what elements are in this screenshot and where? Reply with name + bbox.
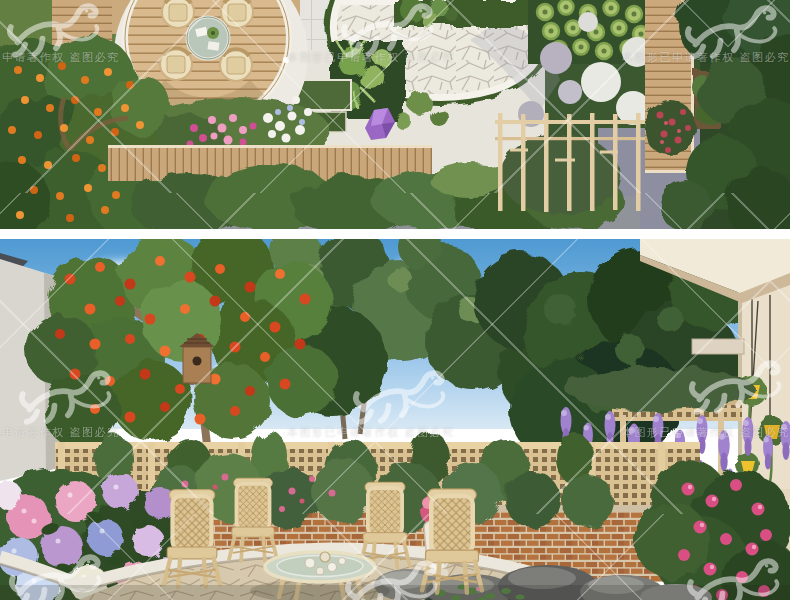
fruit-tree xyxy=(26,239,338,474)
bottom-shadow xyxy=(0,585,790,600)
courtyard-scene xyxy=(0,239,790,600)
garden-aerial-plan-image: 本图形已申请著作权 盗图必究 本图形已申请著作权 盗图必究 本图形已申请著作权 … xyxy=(0,0,790,229)
red-flower-bed xyxy=(644,100,696,156)
image-gap xyxy=(0,229,790,239)
garden-courtyard-image: 本图形已申请著作权 盗图必究 本图形已申请著作权 盗图必究 本图形已申请著作权 … xyxy=(0,239,790,600)
aerial-plan-scene xyxy=(0,0,790,229)
product-image-gallery: 本图形已申请著作权 盗图必究 本图形已申请著作权 盗图必究 本图形已申请著作权 … xyxy=(0,0,790,600)
